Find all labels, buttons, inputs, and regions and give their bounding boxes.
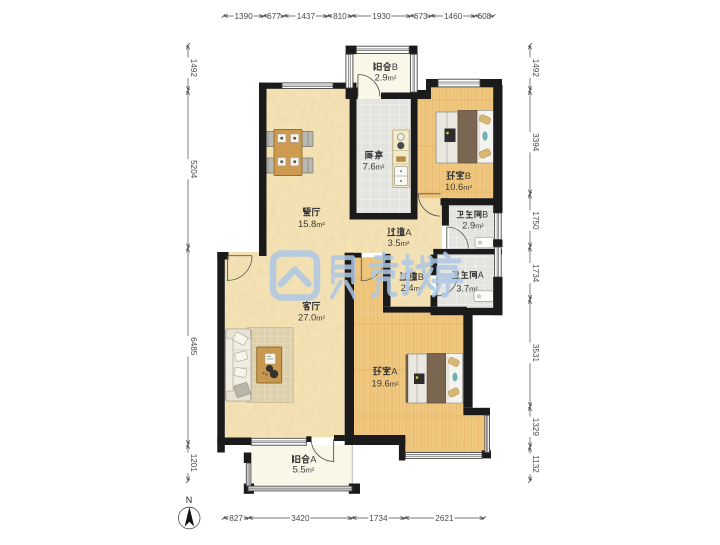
svg-text:A: A <box>405 226 412 237</box>
svg-text:A: A <box>391 365 398 376</box>
svg-text:1492: 1492 <box>189 59 198 78</box>
svg-text:1930: 1930 <box>372 12 391 21</box>
svg-text:A: A <box>478 270 484 280</box>
svg-text:2.9m²: 2.9m² <box>375 71 397 82</box>
svg-text:1201: 1201 <box>189 454 198 473</box>
svg-text:1734: 1734 <box>531 264 540 283</box>
svg-text:B: B <box>392 61 398 72</box>
svg-text:1750: 1750 <box>531 211 540 230</box>
svg-text:15.8m²: 15.8m² <box>298 218 325 229</box>
svg-text:A: A <box>310 453 317 464</box>
svg-text:1390: 1390 <box>234 12 253 21</box>
svg-text:2.9m²: 2.9m² <box>462 220 484 230</box>
svg-text:3531: 3531 <box>531 344 540 363</box>
svg-text:6485: 6485 <box>189 337 198 356</box>
svg-text:5204: 5204 <box>189 160 198 179</box>
svg-text:10.6m²: 10.6m² <box>445 181 472 192</box>
svg-text:1492: 1492 <box>531 59 540 78</box>
svg-text:5.5m²: 5.5m² <box>293 463 315 474</box>
svg-text:608: 608 <box>478 12 492 21</box>
svg-text:3.7m²: 3.7m² <box>456 283 478 293</box>
svg-text:3.5m²: 3.5m² <box>388 237 410 248</box>
svg-text:3420: 3420 <box>291 514 310 523</box>
svg-text:827: 827 <box>229 514 243 523</box>
svg-text:B: B <box>465 170 471 181</box>
svg-text:2621: 2621 <box>435 514 454 523</box>
svg-text:N: N <box>186 495 193 505</box>
svg-text:19.6m²: 19.6m² <box>372 377 399 388</box>
svg-text:B: B <box>482 210 488 220</box>
svg-text:1734: 1734 <box>369 514 388 523</box>
svg-text:1132: 1132 <box>531 455 540 473</box>
svg-text:810: 810 <box>333 12 347 21</box>
svg-text:677: 677 <box>267 12 281 21</box>
svg-text:1329: 1329 <box>531 418 540 437</box>
svg-text:673: 673 <box>414 12 428 21</box>
svg-text:1437: 1437 <box>297 12 316 21</box>
svg-text:7.6m²: 7.6m² <box>363 160 385 171</box>
svg-text:1460: 1460 <box>444 12 463 21</box>
svg-text:27.0m²: 27.0m² <box>298 311 325 322</box>
svg-text:3394: 3394 <box>531 133 540 152</box>
